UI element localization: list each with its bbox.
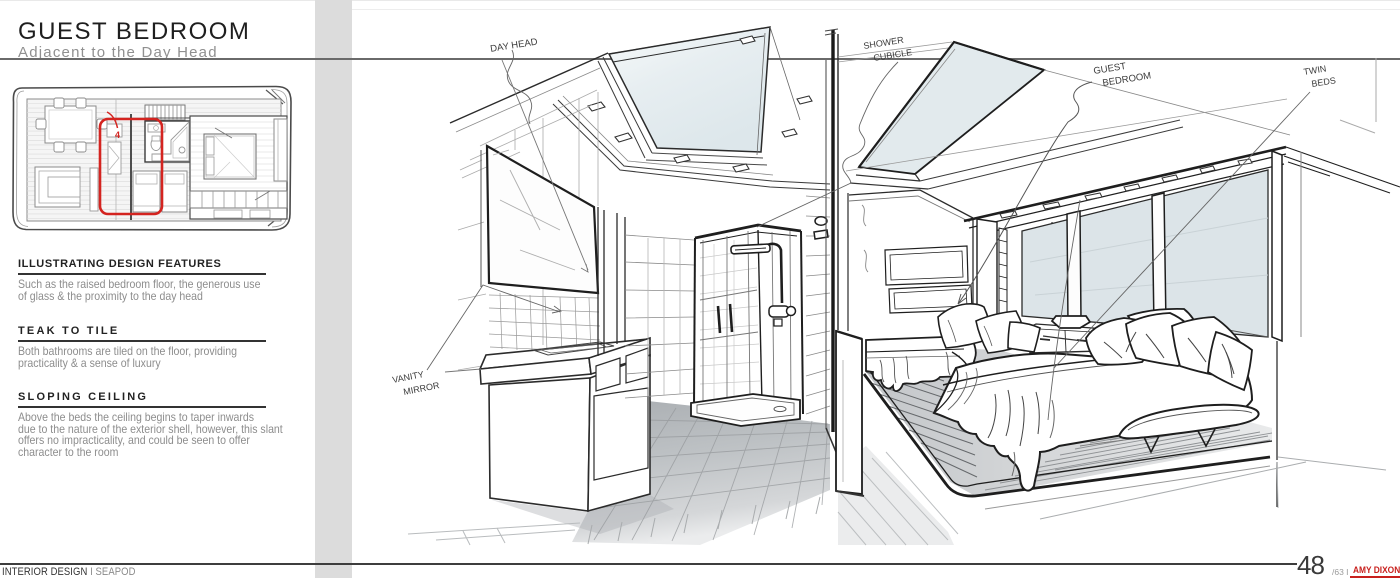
svg-text:VANITY: VANITY [391, 369, 424, 385]
svg-text:CUBICLE: CUBICLE [873, 47, 913, 63]
svg-text:BEDS: BEDS [1311, 75, 1337, 89]
svg-text:MIRROR: MIRROR [402, 380, 440, 397]
svg-text:DAY HEAD: DAY HEAD [490, 36, 539, 54]
svg-text:TWIN: TWIN [1303, 64, 1327, 77]
